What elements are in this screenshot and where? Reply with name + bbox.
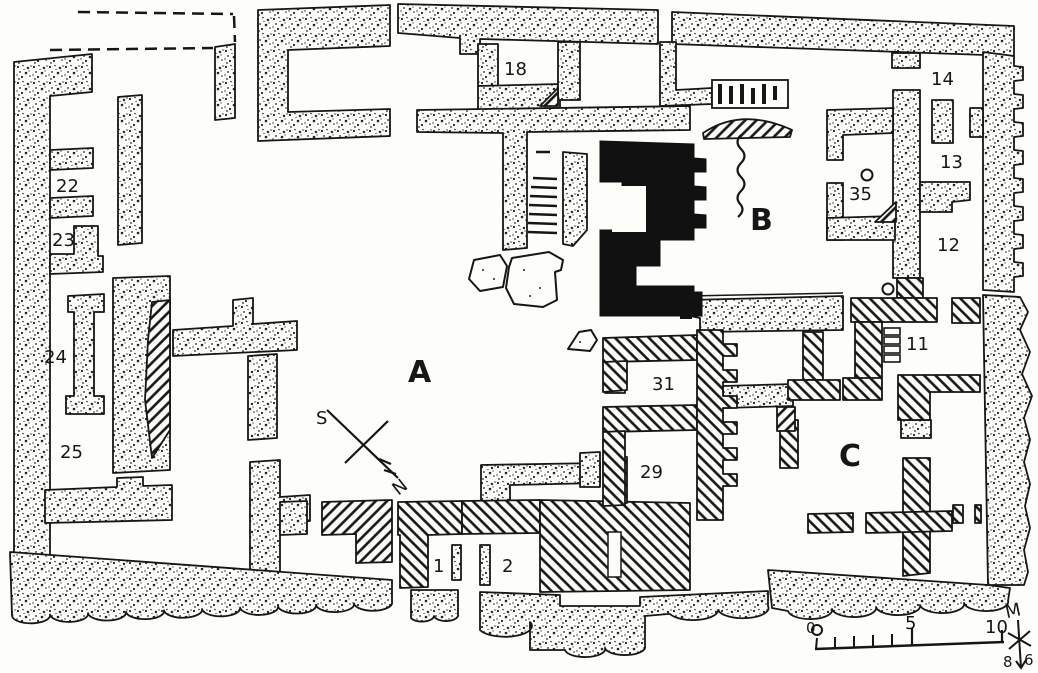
room-22-label: 22 [56, 176, 79, 197]
slot-in-south-mass [608, 532, 621, 577]
wall-sq-ne-b [952, 298, 980, 323]
wall-11-top-bar [851, 298, 937, 322]
compass-south-label: S [316, 408, 327, 429]
room-2-label: 2 [502, 556, 513, 577]
wall-11-stem [843, 322, 882, 400]
jamb-room2 [480, 545, 490, 585]
column-base-room35 [862, 170, 873, 181]
scale-unit-label: M [1003, 599, 1023, 623]
room-13-label: 13 [940, 152, 963, 173]
patch-west-29 [580, 452, 600, 487]
room-1-label: 1 [433, 556, 444, 577]
plan-canvas: A B C 1 2 11 12 13 14 18 22 23 24 25 29 … [0, 0, 1038, 673]
outer-wall-south-center [480, 591, 768, 657]
stone-b [506, 252, 563, 307]
north-mark-right: 6 [1024, 651, 1034, 669]
wall-room18-left [478, 44, 498, 86]
wall-sq-c-mid [777, 407, 795, 431]
dashed-line-top [78, 12, 233, 14]
stone-a [469, 255, 507, 291]
room-11-label: 11 [906, 334, 929, 355]
black-structure [600, 141, 706, 319]
dashed-line-end [234, 16, 235, 42]
wavy-edge-line [738, 135, 745, 217]
wall-south-a [322, 500, 392, 563]
wall-south-c [462, 500, 540, 534]
staircase-room11 [884, 328, 900, 362]
dashed-reconstruction-lines [50, 12, 235, 50]
stone-c [568, 330, 597, 351]
north-shaft [1018, 620, 1021, 668]
wall-room31-left [603, 361, 627, 392]
wall-top-c-building [258, 5, 390, 141]
wall-room24-pier [66, 294, 104, 414]
wall-vert-a [248, 354, 277, 440]
wall-c-bar-a [953, 505, 963, 523]
wall-stub-14-13 [932, 100, 953, 143]
room-24-label: 24 [44, 347, 67, 368]
room-12-label: 12 [937, 235, 960, 256]
wall-t-center-west [173, 298, 297, 356]
outer-wall-north-a [398, 4, 658, 54]
wall-small-room-east [660, 42, 712, 106]
area-c-label: C [839, 439, 861, 474]
wall-toothed-east-29 [697, 330, 737, 520]
room-25-label: 25 [60, 442, 83, 463]
room-14-label: 14 [931, 69, 954, 90]
wall-band-c-north [690, 296, 843, 332]
outer-wall-north-b [672, 12, 1014, 56]
wall-arm-room13 [920, 182, 970, 212]
black-block-small [680, 309, 692, 319]
outer-wall-east-lower [983, 295, 1032, 585]
jamb-room1 [452, 545, 461, 580]
wall-room22-top [50, 148, 93, 170]
wall-below-11 [898, 375, 980, 420]
room-31-label: 31 [652, 374, 675, 395]
wall-stair-east-strip [563, 152, 587, 246]
compass-axis-cross [345, 421, 388, 463]
wall-c-south-left [808, 513, 853, 533]
column-base-near-11 [883, 284, 894, 295]
wall-cross-arm-ne [827, 108, 893, 160]
compass-axis-sn [327, 410, 398, 478]
scale-5-label: 5 [905, 613, 916, 634]
wall-stub-top-ne [892, 53, 920, 68]
band-c-top-line [688, 293, 843, 296]
site-plan-figure: A B C 1 2 11 12 13 14 18 22 23 24 25 29 … [0, 0, 1038, 673]
outer-wall-southwest [10, 552, 392, 623]
wall-cross-vertical-ne [893, 90, 920, 278]
compass-north-label: N [388, 475, 412, 500]
dashed-line-lower [50, 48, 213, 50]
scale-bar-line [815, 642, 1004, 649]
scale-10-label: 10 [985, 617, 1008, 638]
mound-near-b [703, 119, 792, 139]
wall-topleft-stub [215, 44, 235, 120]
room-35-label: 35 [849, 184, 872, 205]
wall-room22-bottom [50, 196, 93, 218]
wall-c-west-foot [788, 380, 840, 400]
wall-inner-strip [118, 95, 142, 245]
staircase-center [528, 152, 557, 233]
room-29-label: 29 [640, 462, 663, 483]
triangle-room35 [875, 202, 896, 222]
wall-room18-right [558, 42, 580, 100]
scale-0-label: 0 [806, 619, 816, 637]
patch-below-11 [901, 420, 931, 438]
portico-comb [712, 80, 788, 108]
room-23-label: 23 [52, 230, 75, 251]
wall-sq-ne-a [897, 278, 923, 298]
black-monument-notch [612, 186, 646, 232]
outer-wall-southeast [768, 570, 1010, 619]
room-18-label: 18 [504, 59, 527, 80]
wall-31-29-divider [603, 405, 697, 432]
wall-room31-top [603, 335, 697, 362]
compass-cross [327, 410, 398, 478]
wall-stub-east-14 [970, 108, 983, 137]
wall-room29-left [603, 431, 625, 506]
block-south-a [280, 501, 307, 535]
area-b-label: B [750, 203, 773, 238]
outer-wall-east-upper [983, 52, 1023, 292]
wall-c-south-arm [866, 511, 952, 533]
wall-room25-south [45, 477, 172, 523]
north-mark-left: 8 [1003, 653, 1013, 671]
wall-c-west-upper [803, 332, 823, 380]
wall-stub-below-room1 [411, 590, 458, 622]
area-a-label: A [408, 355, 432, 390]
stone-blocks [469, 252, 597, 351]
wall-c-bar-b [975, 505, 981, 523]
